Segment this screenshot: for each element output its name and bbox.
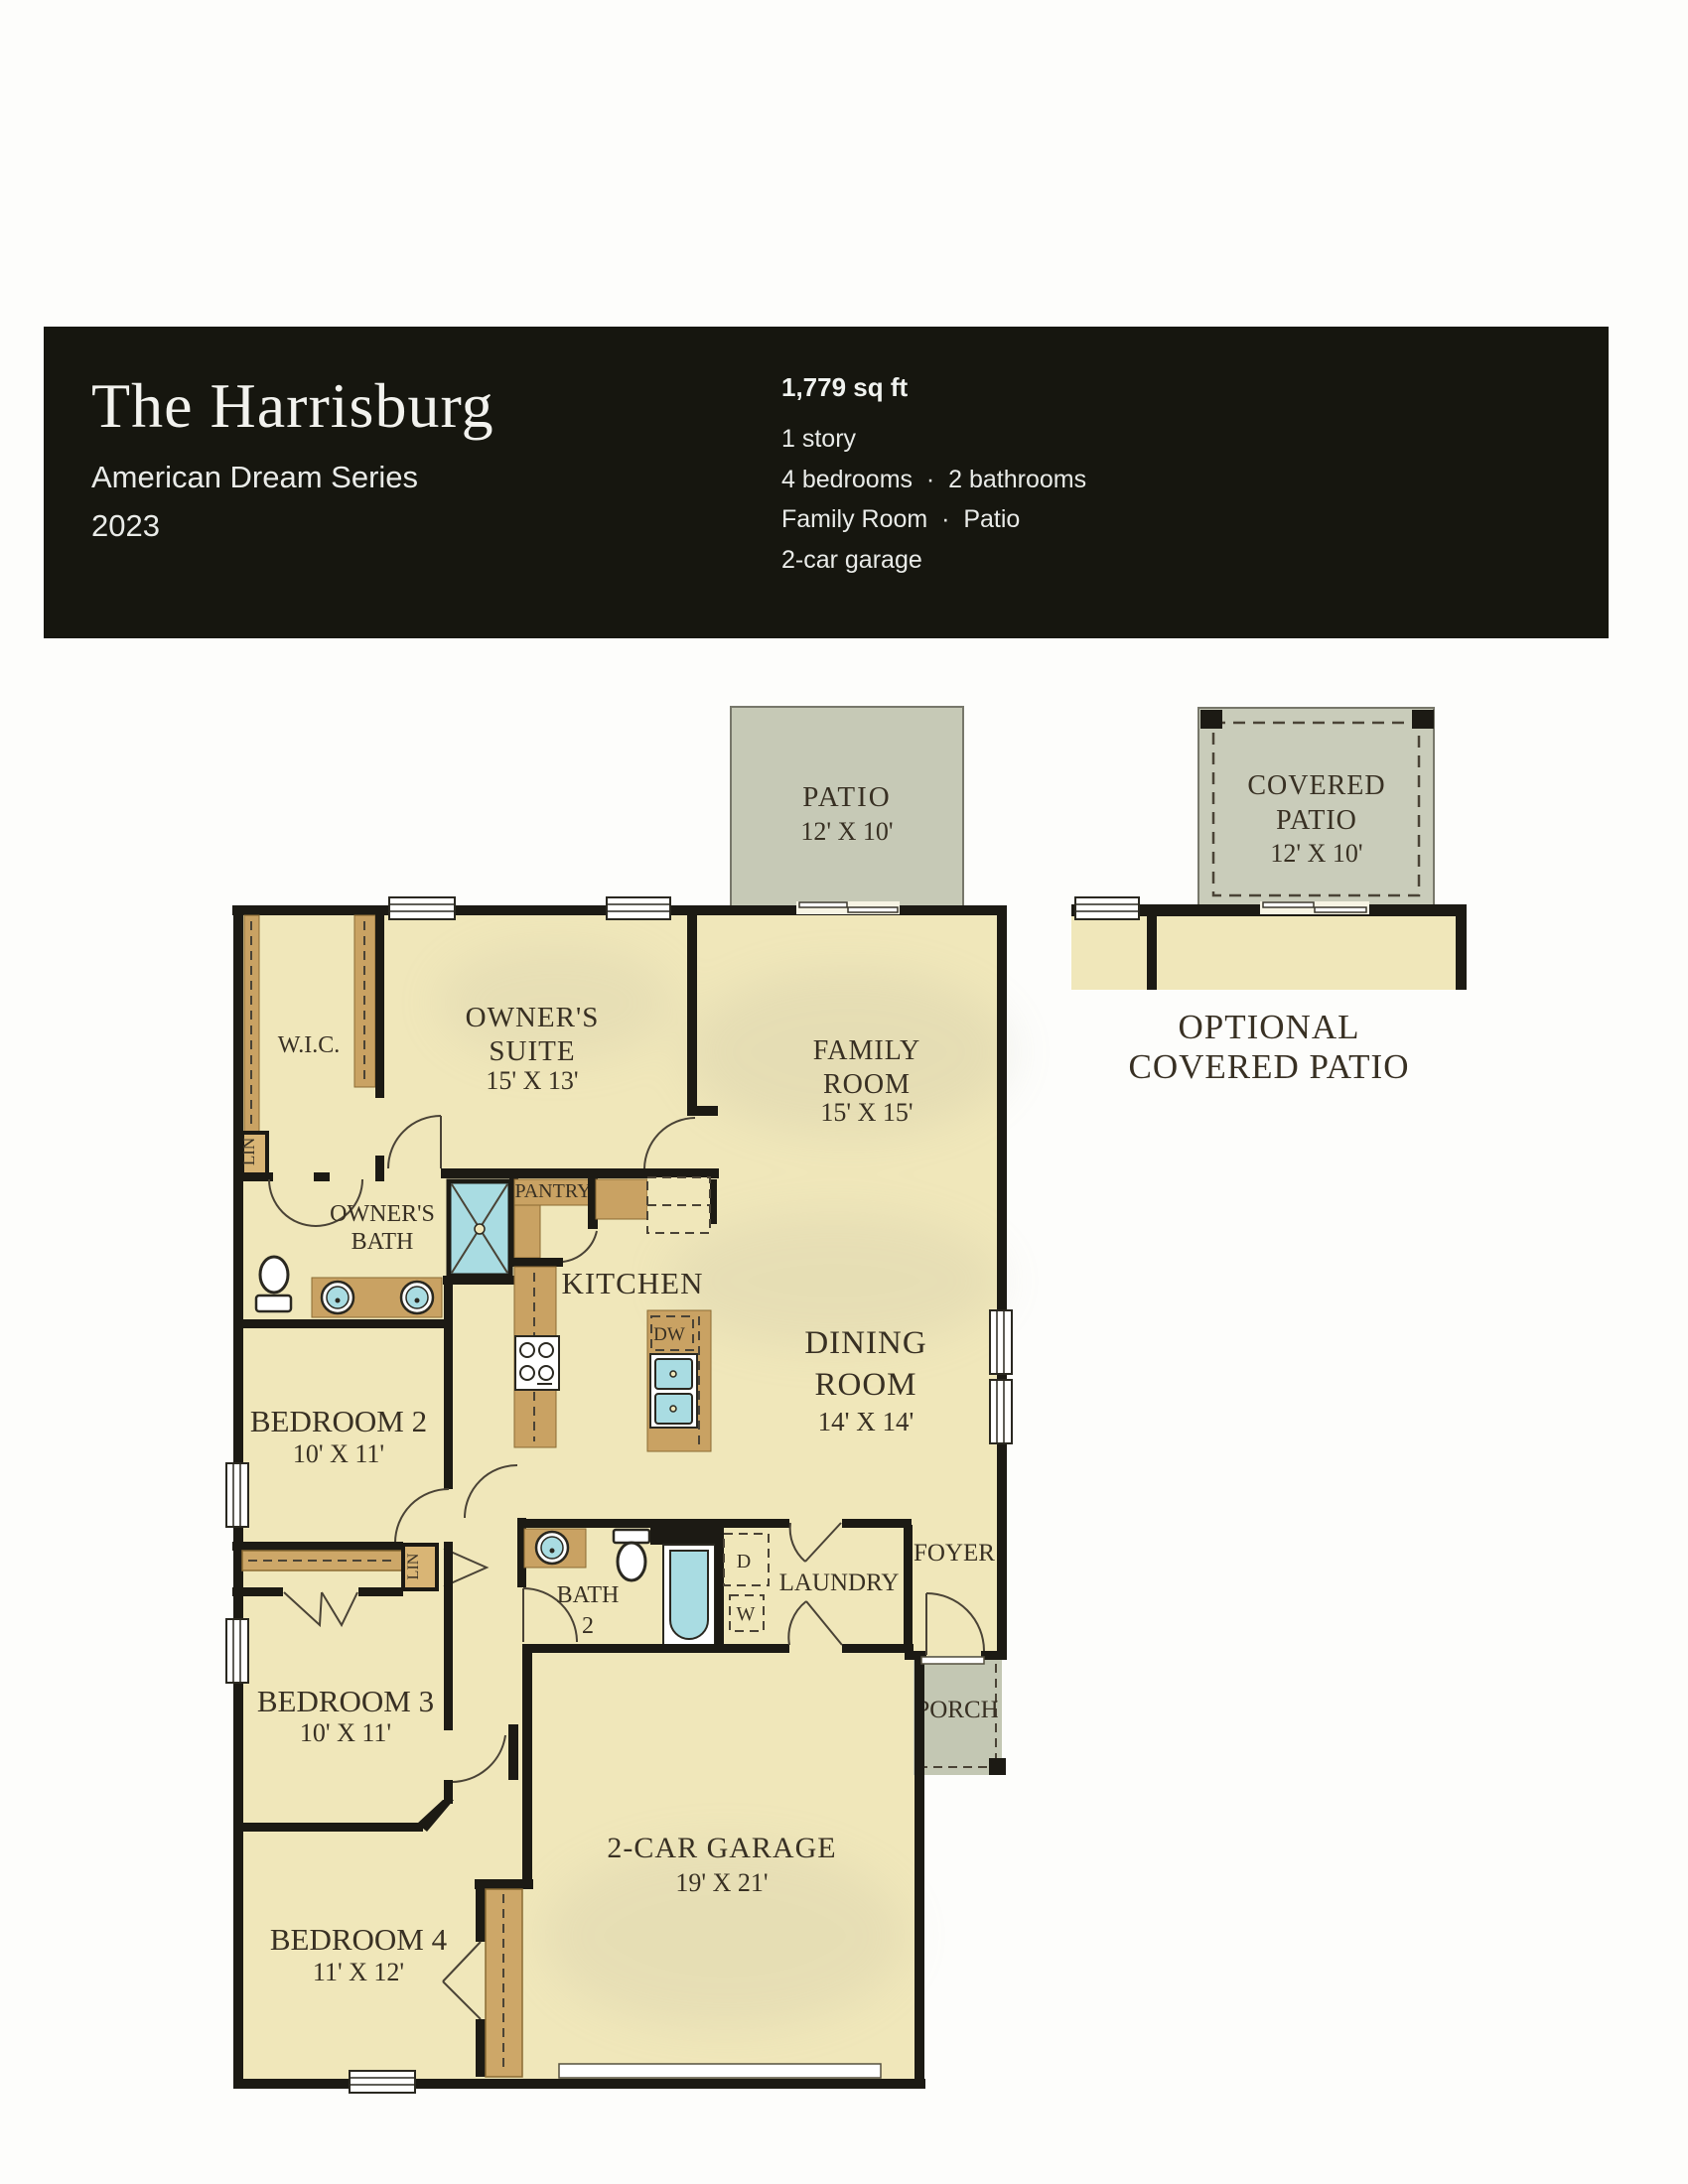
svg-text:COVERED PATIO: COVERED PATIO	[1129, 1047, 1410, 1086]
svg-text:DINING: DINING	[804, 1325, 926, 1361]
svg-text:10' X 11': 10' X 11'	[300, 1718, 391, 1747]
svg-text:KITCHEN: KITCHEN	[561, 1266, 703, 1300]
svg-text:BATH: BATH	[557, 1582, 620, 1608]
svg-text:W.I.C.: W.I.C.	[278, 1032, 340, 1058]
svg-text:10' X 11': 10' X 11'	[293, 1439, 384, 1468]
svg-text:FAMILY: FAMILY	[813, 1035, 920, 1066]
svg-text:W: W	[737, 1603, 756, 1625]
svg-text:14' X 14': 14' X 14'	[818, 1407, 914, 1436]
svg-text:BEDROOM 2: BEDROOM 2	[250, 1404, 427, 1438]
svg-text:12' X 10': 12' X 10'	[1270, 839, 1362, 868]
svg-text:OPTIONAL: OPTIONAL	[1179, 1008, 1360, 1046]
svg-text:The Harrisburg: The Harrisburg	[91, 370, 494, 441]
svg-text:ROOM: ROOM	[814, 1367, 916, 1403]
svg-text:American Dream Series: American Dream Series	[91, 460, 418, 494]
svg-text:12' X 10': 12' X 10'	[800, 817, 893, 846]
svg-text:DW: DW	[653, 1324, 685, 1345]
svg-text:2-CAR GARAGE: 2-CAR GARAGE	[607, 1832, 836, 1864]
svg-text:OWNER'S: OWNER'S	[330, 1201, 435, 1227]
svg-text:BEDROOM 3: BEDROOM 3	[257, 1684, 434, 1718]
svg-text:PATIO: PATIO	[1276, 805, 1357, 836]
svg-text:PORCH: PORCH	[915, 1697, 998, 1723]
svg-text:2: 2	[582, 1613, 594, 1639]
svg-text:BATH: BATH	[352, 1229, 414, 1255]
svg-text:15' X 13': 15' X 13'	[486, 1066, 578, 1095]
svg-text:1,779 sq ft: 1,779 sq ft	[781, 372, 909, 402]
svg-text:Family Room · Patio: Family Room · Patio	[781, 505, 1020, 533]
svg-text:2-car garage: 2-car garage	[781, 546, 922, 574]
svg-text:BEDROOM 4: BEDROOM 4	[270, 1922, 448, 1957]
svg-text:LAUNDRY: LAUNDRY	[779, 1570, 900, 1596]
svg-text:LIN: LIN	[239, 1138, 258, 1165]
svg-text:19' X 21': 19' X 21'	[675, 1868, 768, 1897]
svg-text:ROOM: ROOM	[823, 1069, 911, 1100]
svg-text:4 bedrooms · 2 bathrooms: 4 bedrooms · 2 bathrooms	[781, 466, 1086, 493]
svg-text:COVERED: COVERED	[1247, 770, 1385, 801]
svg-text:LIN: LIN	[405, 1553, 422, 1579]
svg-text:PANTRY: PANTRY	[514, 1180, 591, 1202]
svg-text:OWNER'S: OWNER'S	[466, 1002, 600, 1033]
svg-text:SUITE: SUITE	[489, 1035, 575, 1067]
svg-text:15' X 15': 15' X 15'	[820, 1098, 913, 1127]
svg-text:FOYER: FOYER	[914, 1540, 995, 1567]
svg-text:D: D	[737, 1551, 751, 1572]
svg-text:1 story: 1 story	[781, 425, 857, 453]
svg-text:2023: 2023	[91, 508, 160, 543]
svg-text:PATIO: PATIO	[802, 781, 892, 813]
svg-text:11' X 12': 11' X 12'	[313, 1958, 404, 1986]
